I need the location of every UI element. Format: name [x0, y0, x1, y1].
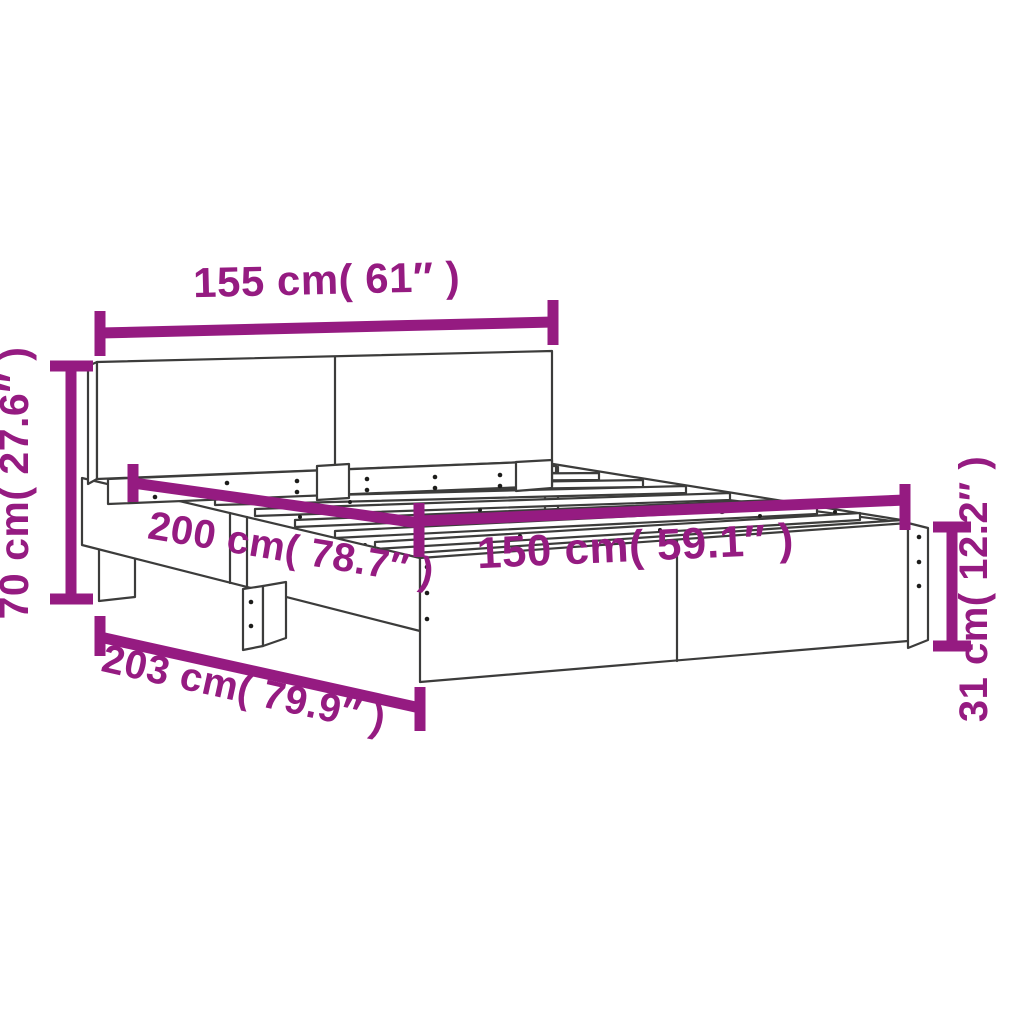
- screw-dot: [433, 475, 438, 480]
- screw-dot: [348, 500, 352, 504]
- center-leg: [243, 582, 286, 650]
- screw-dot: [365, 488, 370, 493]
- screw-dot: [917, 584, 922, 589]
- center-leg-front: [243, 586, 263, 650]
- diagram-canvas: 155 cm( 61″ ) 70 cm( 27.6″ ) 200 cm( 78.…: [0, 0, 1024, 1024]
- bed-frame-dimension-diagram: 155 cm( 61″ ) 70 cm( 27.6″ ) 200 cm( 78.…: [0, 0, 1024, 1024]
- screw-dot: [225, 481, 230, 486]
- support-bracket: [317, 464, 349, 500]
- dimension-label-headboard-width: 155 cm( 61″ ): [193, 253, 461, 307]
- screw-dot: [498, 473, 503, 478]
- screw-dot: [249, 624, 254, 629]
- dimension-label-frame-height: 31 cm( 12.2″ ): [952, 456, 996, 722]
- screw-dot: [365, 477, 370, 482]
- screw-dot: [249, 600, 254, 605]
- center-leg-side: [263, 582, 286, 646]
- dimension-headboard-height: 70 cm( 27.6″ ): [0, 347, 93, 620]
- screw-dot: [295, 479, 300, 484]
- screw-dot: [917, 535, 922, 540]
- screw-dot: [295, 490, 300, 495]
- dimension-label-outer-length: 203 cm( 79.9″ ): [98, 637, 390, 743]
- screw-dot: [433, 486, 438, 491]
- screw-dot: [498, 484, 503, 489]
- dimension-line: [100, 322, 553, 333]
- dimension-frame-height: 31 cm( 12.2″ ): [933, 456, 996, 722]
- screw-dot: [153, 495, 158, 500]
- dimension-label-headboard-height: 70 cm( 27.6″ ): [0, 347, 37, 620]
- screw-dot: [917, 560, 922, 565]
- headboard-edge-strip: [88, 362, 97, 484]
- support-bracket: [516, 460, 552, 491]
- screw-dot: [478, 508, 482, 512]
- dimension-headboard-width: 155 cm( 61″ ): [100, 253, 553, 356]
- headboard-panel: [97, 351, 552, 479]
- screw-dot: [833, 510, 837, 514]
- screw-dot: [425, 617, 430, 622]
- screw-dot: [298, 515, 302, 519]
